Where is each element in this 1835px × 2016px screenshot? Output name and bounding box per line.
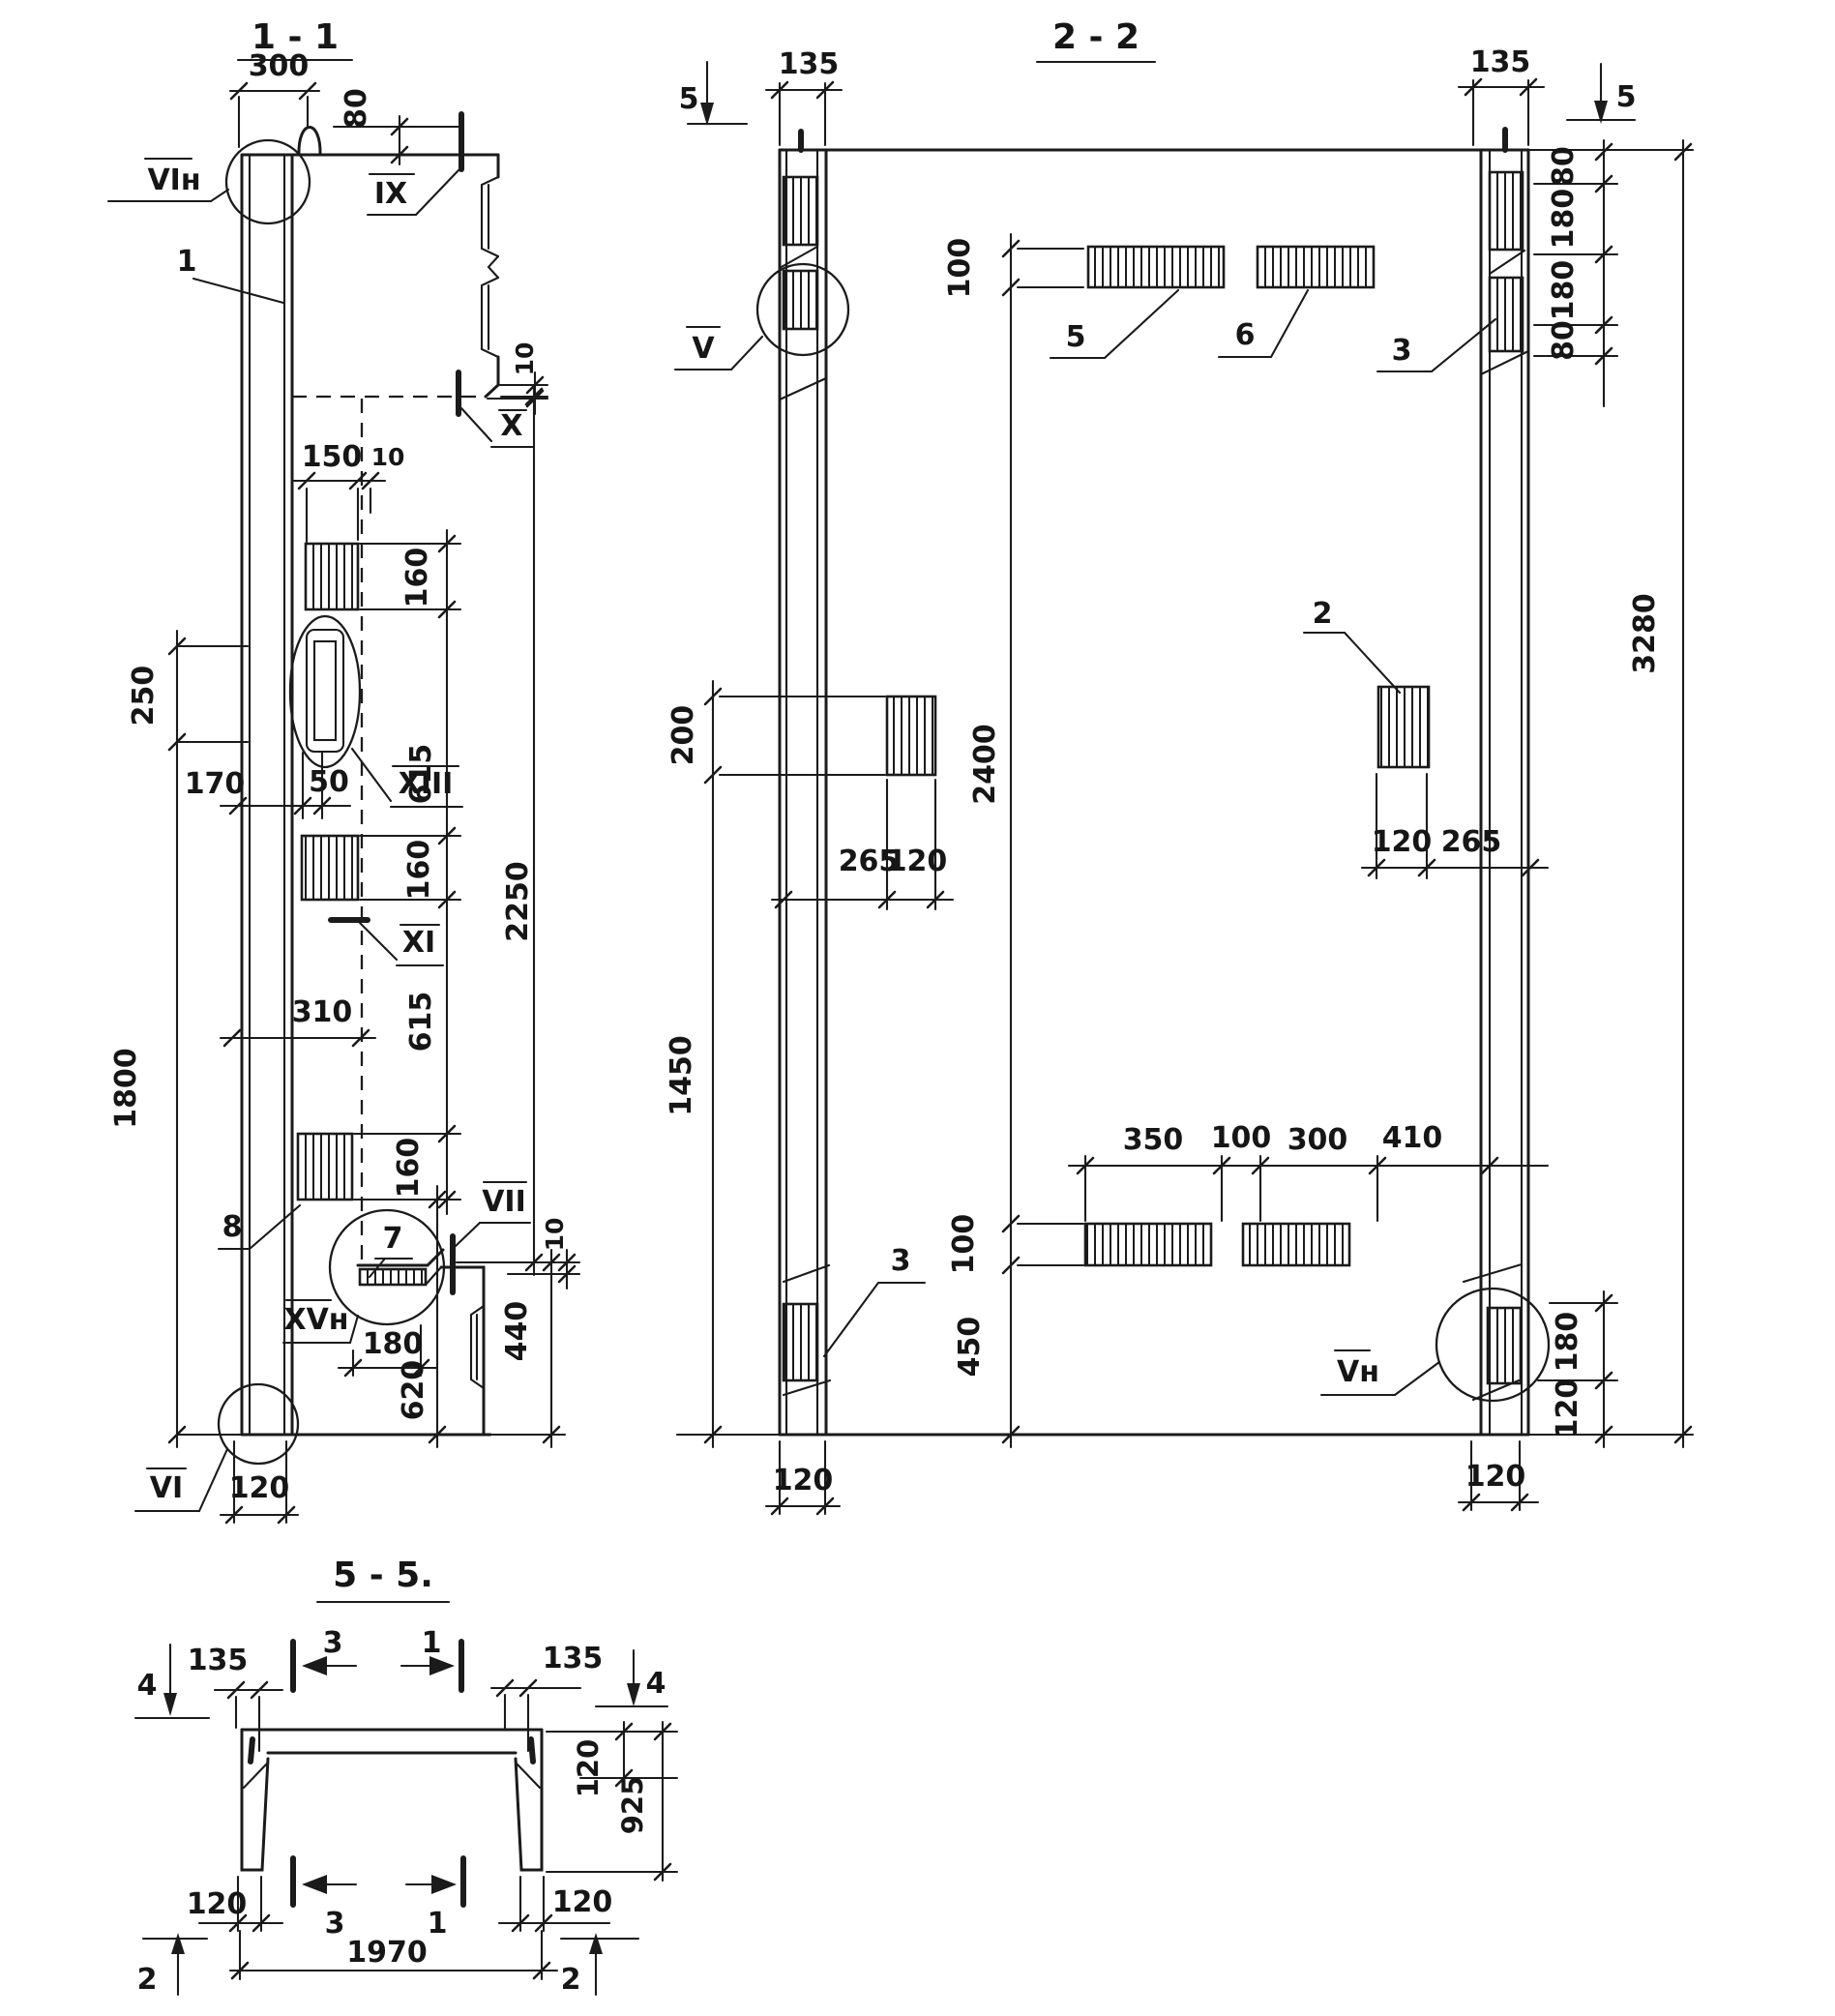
dim: 120	[229, 1471, 290, 1505]
label-vii: VII	[482, 1185, 526, 1219]
dim: 120	[572, 1739, 605, 1798]
dim: 135	[188, 1644, 249, 1677]
dim: 120	[1372, 825, 1433, 859]
dim: 1450	[665, 1035, 698, 1116]
dim: 120	[1465, 1460, 1526, 1494]
dim: 120	[887, 845, 948, 878]
dim: 250	[127, 666, 161, 726]
embedded-plate	[302, 836, 358, 900]
dim: 100	[947, 1214, 981, 1275]
dim: 135	[543, 1642, 604, 1675]
dim: 2250	[501, 861, 535, 942]
dim: 265	[1441, 825, 1502, 859]
label-5: 5	[1066, 320, 1086, 354]
dim: 10	[371, 443, 405, 471]
label-xv-n: XVн	[283, 1303, 348, 1337]
dim: 310	[292, 995, 353, 1029]
section-2-2: 2 - 2	[665, 17, 1693, 1514]
section-marker-4-right: 4	[646, 1667, 666, 1701]
embedded-plate	[784, 1304, 817, 1380]
label-vi-n: VIн	[147, 163, 200, 197]
label-6: 6	[1235, 318, 1256, 352]
embedded-plate	[784, 177, 817, 245]
dim: 160	[392, 1138, 426, 1199]
label-vi: VI	[150, 1471, 183, 1505]
label-3-bottom: 3	[891, 1244, 911, 1278]
section-marker-5-left: 5	[679, 82, 699, 116]
dim: 350	[1123, 1123, 1184, 1157]
dim: 1800	[109, 1048, 143, 1129]
embedded-plate	[306, 544, 358, 609]
embedded-plate	[1085, 1224, 1211, 1265]
section-marker-5-right: 5	[1616, 80, 1637, 114]
embedded-plate	[887, 697, 935, 775]
dim: 180	[1547, 260, 1581, 321]
dim: 160	[402, 840, 436, 901]
dim: 3280	[1628, 593, 1662, 674]
dim: 300	[249, 49, 310, 83]
embedded-plate-5	[1088, 247, 1224, 287]
dim: 100	[1211, 1121, 1272, 1155]
dim: 135	[779, 47, 840, 81]
label-x: X	[500, 409, 522, 443]
dim: 925	[616, 1776, 649, 1835]
embedded-plate	[1490, 278, 1523, 351]
s55-outline	[242, 1730, 542, 1870]
section-marker-3-bottom: 3	[325, 1907, 345, 1941]
embedded-plate	[784, 271, 817, 329]
section-marker-1-bottom: 1	[428, 1907, 448, 1941]
dim: 615	[404, 992, 438, 1052]
embedded-plate-2	[1378, 687, 1429, 767]
label-xiii: XIII	[399, 767, 454, 801]
detail-oval-xiii	[290, 616, 360, 767]
section-marker-2-right: 2	[561, 1963, 581, 1997]
dim: 10	[541, 1218, 569, 1252]
drawing-sheet: 1 - 1	[0, 0, 1835, 2016]
dim: 180	[1551, 1312, 1584, 1373]
slot-inner	[314, 641, 336, 740]
detail-circle-vin	[226, 140, 310, 223]
label-v-n: Vн	[1337, 1355, 1379, 1389]
embedded-plate	[1488, 1308, 1521, 1383]
s11-outline	[219, 114, 498, 1464]
embedded-plate-6	[1258, 247, 1374, 287]
dim: 170	[185, 767, 246, 801]
dim: 180	[1547, 189, 1581, 250]
dim: 410	[1382, 1121, 1443, 1155]
dim: 135	[1470, 45, 1531, 79]
label-3-top: 3	[1392, 334, 1412, 368]
section-title: 5 - 5.	[333, 1556, 433, 1595]
section-marker-1-top: 1	[422, 1626, 442, 1660]
label-ix: IX	[374, 177, 407, 211]
section-1-1: 1 - 1	[108, 17, 579, 1523]
label-2: 2	[1313, 597, 1333, 631]
dim: 120	[552, 1885, 613, 1919]
label-xi: XI	[402, 926, 435, 960]
label-1: 1	[177, 245, 197, 279]
dim: 80	[340, 88, 373, 129]
dim: 150	[302, 440, 363, 474]
dim: 200	[666, 705, 700, 766]
dim: 2400	[968, 724, 1002, 805]
dim: 440	[500, 1301, 534, 1362]
label-8: 8	[222, 1210, 243, 1244]
dim: 1970	[346, 1936, 428, 1970]
technical-drawing: 1 - 1	[0, 0, 1835, 2016]
dim: 120	[773, 1464, 834, 1497]
dim: 120	[187, 1887, 248, 1921]
dim: 180	[363, 1327, 424, 1361]
section-marker-3-top: 3	[323, 1626, 343, 1660]
dim: 160	[400, 548, 434, 608]
embedded-plate	[1490, 172, 1523, 250]
dim: 620	[397, 1360, 430, 1421]
label-v: V	[692, 332, 715, 366]
embedded-plate	[1243, 1224, 1349, 1265]
label-7: 7	[383, 1222, 403, 1256]
dim: 80	[1547, 146, 1581, 187]
dim: 80	[1547, 320, 1581, 361]
dim: 10	[511, 342, 539, 376]
section-marker-4-left: 4	[137, 1669, 158, 1703]
embedded-plate	[298, 1134, 352, 1200]
section-marker-2-left: 2	[137, 1963, 158, 1997]
lifting-loop	[299, 128, 320, 156]
dim: 120	[1551, 1379, 1584, 1439]
dim: 50	[309, 765, 349, 799]
slot-opening	[307, 630, 343, 752]
dim: 100	[943, 238, 977, 299]
section-5-5: 5 - 5. 4 4 3 1 3	[135, 1556, 677, 1997]
dim: 450	[953, 1317, 987, 1378]
section-title: 2 - 2	[1052, 17, 1139, 57]
dim: 300	[1287, 1123, 1348, 1157]
